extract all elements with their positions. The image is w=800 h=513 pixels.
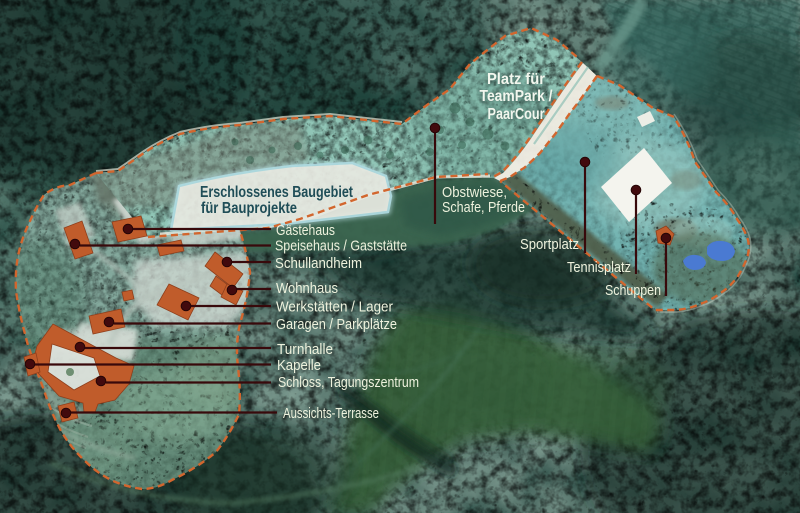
svg-text:Schafe, Pferde: Schafe, Pferde [442, 200, 525, 216]
svg-text:Schullandheim: Schullandheim [275, 256, 362, 272]
svg-text:Kapelle: Kapelle [277, 358, 321, 374]
svg-text:Obstwiese,: Obstwiese, [442, 185, 507, 201]
svg-text:Schloss, Tagungszentrum: Schloss, Tagungszentrum [278, 375, 419, 391]
svg-text:Wohnhaus: Wohnhaus [276, 281, 338, 297]
svg-text:TeamPark /: TeamPark / [480, 88, 553, 105]
svg-text:für Bauprojekte: für Bauprojekte [201, 200, 297, 217]
svg-text:Tennisplatz: Tennisplatz [567, 260, 631, 276]
svg-text:Schuppen: Schuppen [605, 283, 661, 299]
svg-text:Sportplatz: Sportplatz [520, 237, 579, 253]
svg-text:Werkstätten / Lager: Werkstätten / Lager [276, 300, 393, 316]
svg-text:Garagen / Parkplätze: Garagen / Parkplätze [276, 317, 397, 333]
svg-text:Aussichts-Terrasse: Aussichts-Terrasse [283, 406, 379, 422]
svg-text:PaarCour: PaarCour [488, 106, 545, 123]
svg-text:Gästehaus: Gästehaus [276, 223, 335, 239]
svg-text:Turnhalle: Turnhalle [277, 342, 333, 358]
svg-text:Platz für: Platz für [487, 71, 545, 88]
svg-text:Speisehaus / Gaststätte: Speisehaus / Gaststätte [275, 239, 407, 255]
svg-text:Erschlossenes Baugebiet: Erschlossenes Baugebiet [200, 184, 354, 201]
